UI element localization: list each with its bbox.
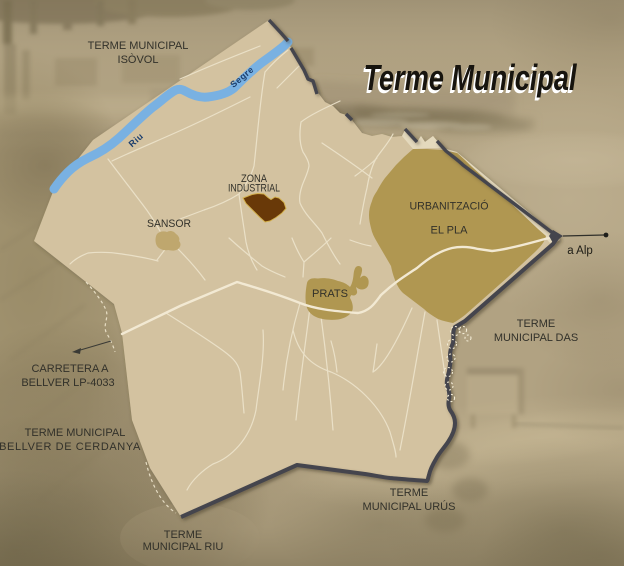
svg-text:URBANITZACIÓ: URBANITZACIÓ xyxy=(410,200,489,213)
svg-text:Terme Municipal: Terme Municipal xyxy=(364,57,578,98)
svg-text:a Alp: a Alp xyxy=(567,245,593,257)
svg-text:MUNICIPAL DAS: MUNICIPAL DAS xyxy=(494,332,578,344)
svg-text:ISÒVOL: ISÒVOL xyxy=(118,53,159,66)
svg-text:BELLVER DE CERDANYA: BELLVER DE CERDANYA xyxy=(0,441,141,453)
svg-text:TERME: TERME xyxy=(517,318,556,330)
svg-text:TERME: TERME xyxy=(164,529,203,541)
svg-text:TERME MUNICIPAL: TERME MUNICIPAL xyxy=(25,427,126,439)
svg-text:INDUSTRIAL: INDUSTRIAL xyxy=(228,183,280,195)
svg-text:MUNICIPAL RIU: MUNICIPAL RIU xyxy=(143,541,224,553)
svg-text:BELLVER LP-4033: BELLVER LP-4033 xyxy=(21,377,114,389)
svg-text:PRATS: PRATS xyxy=(312,288,348,300)
svg-text:SANSOR: SANSOR xyxy=(147,218,191,230)
svg-text:TERME: TERME xyxy=(390,487,429,499)
svg-text:EL PLA: EL PLA xyxy=(431,225,469,237)
svg-text:TERME MUNICIPAL: TERME MUNICIPAL xyxy=(88,40,189,52)
svg-text:CARRETERA A: CARRETERA A xyxy=(31,363,109,375)
svg-text:MUNICIPAL URÚS: MUNICIPAL URÚS xyxy=(363,500,456,513)
